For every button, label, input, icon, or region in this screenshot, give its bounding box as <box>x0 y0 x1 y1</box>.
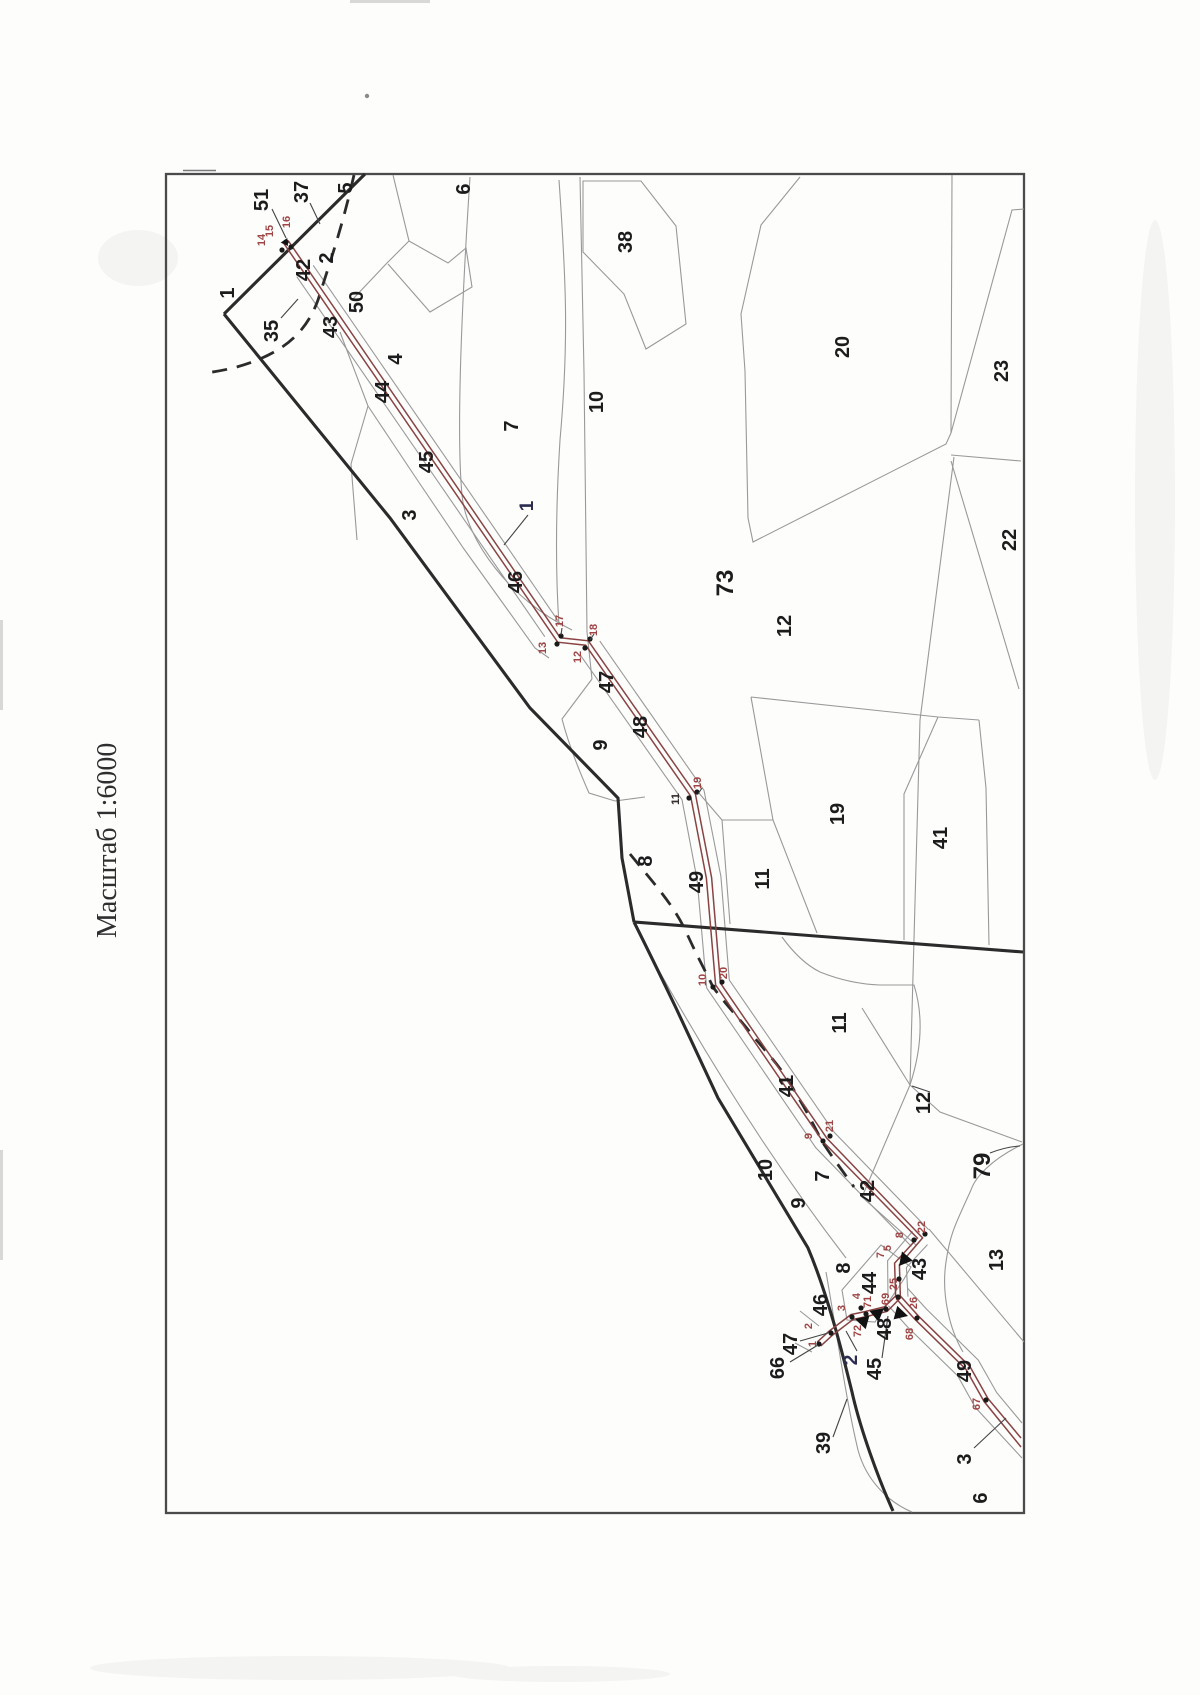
svg-text:1: 1 <box>517 500 538 511</box>
svg-text:9: 9 <box>788 1197 810 1208</box>
svg-text:16: 16 <box>281 216 293 228</box>
svg-text:22: 22 <box>999 529 1021 551</box>
svg-text:69: 69 <box>880 1293 892 1305</box>
svg-text:41: 41 <box>776 1075 798 1097</box>
svg-text:7: 7 <box>812 1170 834 1181</box>
svg-text:50: 50 <box>346 291 368 313</box>
svg-text:39: 39 <box>813 1432 835 1454</box>
svg-text:11: 11 <box>829 1012 851 1033</box>
svg-text:79: 79 <box>969 1153 996 1180</box>
svg-text:1: 1 <box>807 1341 819 1347</box>
svg-text:35: 35 <box>261 320 283 342</box>
svg-text:48: 48 <box>874 1318 896 1340</box>
svg-text:49: 49 <box>686 871 708 893</box>
svg-text:11: 11 <box>670 793 682 805</box>
svg-text:48: 48 <box>630 716 652 738</box>
svg-text:9: 9 <box>590 739 612 750</box>
svg-text:8: 8 <box>635 855 657 866</box>
svg-text:37: 37 <box>291 181 313 203</box>
svg-text:66: 66 <box>767 1357 789 1379</box>
svg-text:73: 73 <box>712 570 739 597</box>
svg-text:10: 10 <box>697 974 709 986</box>
svg-text:38: 38 <box>615 231 637 253</box>
svg-text:10: 10 <box>755 1159 777 1181</box>
svg-text:20: 20 <box>832 336 854 358</box>
svg-text:6: 6 <box>970 1492 992 1503</box>
svg-text:18: 18 <box>588 624 600 636</box>
svg-text:44: 44 <box>859 1271 881 1294</box>
svg-text:17: 17 <box>554 615 566 627</box>
svg-text:7: 7 <box>501 420 523 431</box>
svg-text:2: 2 <box>841 1355 862 1366</box>
svg-text:23: 23 <box>991 360 1013 382</box>
svg-text:5: 5 <box>335 182 357 193</box>
svg-text:4: 4 <box>385 353 407 365</box>
svg-text:46: 46 <box>810 1294 832 1316</box>
svg-text:12: 12 <box>572 651 584 663</box>
svg-text:4: 4 <box>851 1292 863 1299</box>
svg-text:68: 68 <box>904 1328 916 1340</box>
svg-text:49: 49 <box>954 1360 976 1382</box>
svg-text:13: 13 <box>986 1249 1008 1271</box>
svg-text:5: 5 <box>882 1245 894 1251</box>
svg-text:12: 12 <box>774 615 796 637</box>
svg-text:67: 67 <box>971 1398 983 1410</box>
svg-text:46: 46 <box>505 571 527 593</box>
svg-text:7: 7 <box>875 1252 887 1258</box>
svg-text:6: 6 <box>453 183 475 194</box>
svg-text:12: 12 <box>913 1092 935 1114</box>
svg-text:22: 22 <box>916 1221 928 1233</box>
svg-text:19: 19 <box>827 803 849 825</box>
svg-text:72: 72 <box>852 1325 864 1337</box>
svg-text:3: 3 <box>954 1453 976 1464</box>
svg-text:9: 9 <box>803 1133 815 1139</box>
svg-text:1: 1 <box>217 287 239 298</box>
svg-text:45: 45 <box>416 451 438 473</box>
svg-text:45: 45 <box>864 1358 886 1380</box>
svg-text:11: 11 <box>752 868 774 889</box>
svg-text:8: 8 <box>833 1262 855 1273</box>
svg-text:8: 8 <box>894 1232 906 1238</box>
svg-text:71: 71 <box>862 1296 874 1308</box>
svg-text:43: 43 <box>909 1258 931 1280</box>
svg-text:19: 19 <box>692 777 704 789</box>
svg-text:20: 20 <box>718 967 730 979</box>
svg-text:10: 10 <box>586 391 608 413</box>
svg-text:26: 26 <box>908 1297 920 1309</box>
svg-text:47: 47 <box>596 671 618 693</box>
svg-text:42: 42 <box>857 1180 879 1202</box>
svg-text:15: 15 <box>264 225 276 237</box>
svg-text:47: 47 <box>780 1333 802 1355</box>
svg-text:44: 44 <box>372 380 394 403</box>
svg-text:41: 41 <box>930 827 952 849</box>
svg-text:21: 21 <box>824 1120 836 1132</box>
svg-text:13: 13 <box>537 642 549 654</box>
svg-text:51: 51 <box>251 189 273 211</box>
svg-text:42: 42 <box>293 259 315 281</box>
svg-text:43: 43 <box>320 316 342 338</box>
svg-text:2: 2 <box>803 1323 815 1329</box>
svg-text:2: 2 <box>316 252 338 263</box>
svg-text:25: 25 <box>888 1278 900 1290</box>
svg-text:Масштаб 1:6000: Масштаб 1:6000 <box>92 743 123 938</box>
svg-text:3: 3 <box>399 509 421 520</box>
svg-text:3: 3 <box>836 1305 848 1311</box>
